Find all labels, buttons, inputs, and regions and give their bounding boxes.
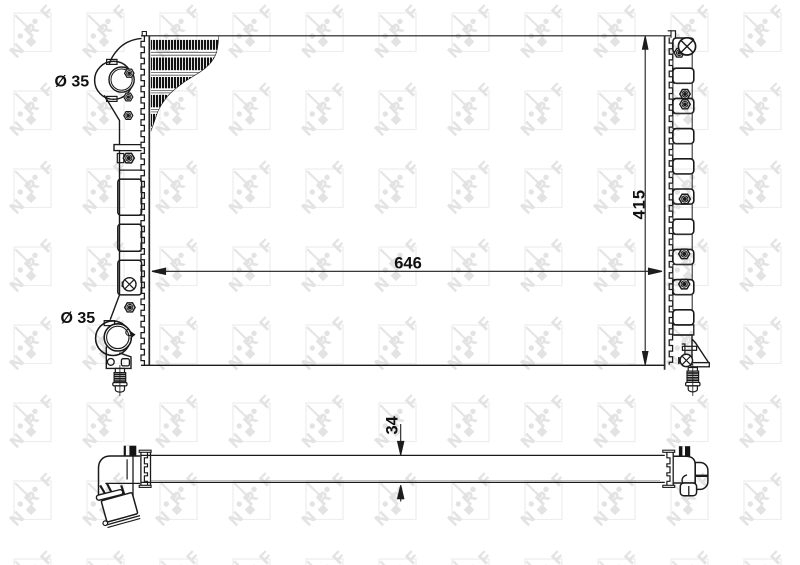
svg-text:Ø 35: Ø 35 <box>55 74 90 91</box>
svg-text:Ø 35: Ø 35 <box>61 310 96 327</box>
svg-text:646: 646 <box>394 254 422 272</box>
svg-text:415: 415 <box>630 189 648 220</box>
svg-text:34: 34 <box>384 415 402 434</box>
